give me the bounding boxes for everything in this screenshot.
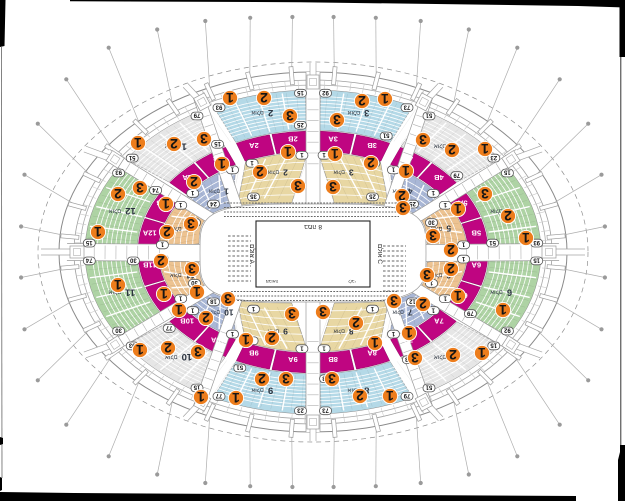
svg-text:3: 3	[411, 350, 419, 366]
svg-text:79: 79	[403, 392, 410, 398]
svg-text:1: 1	[402, 163, 410, 179]
svg-text:2: 2	[367, 155, 375, 171]
svg-text:15: 15	[214, 140, 221, 146]
svg-text:2: 2	[356, 388, 364, 404]
svg-text:1: 1	[454, 201, 462, 217]
svg-text:1: 1	[226, 90, 234, 106]
svg-text:1: 1	[232, 390, 240, 406]
svg-text:5B: 5B	[471, 229, 481, 238]
svg-text:1: 1	[197, 389, 205, 405]
svg-text:2: 2	[419, 296, 427, 312]
svg-text:4A: 4A	[403, 154, 413, 163]
svg-text:2: 2	[449, 347, 457, 363]
svg-text:2: 2	[358, 93, 366, 109]
svg-text:12: 12	[409, 298, 416, 304]
svg-text:8 במה: 8 במה	[304, 223, 322, 230]
svg-text:15: 15	[193, 384, 200, 390]
svg-text:3: 3	[294, 178, 302, 194]
svg-text:3: 3	[286, 108, 294, 124]
svg-text:30: 30	[129, 257, 136, 263]
svg-text:1: 1	[522, 230, 530, 246]
svg-text:51: 51	[128, 154, 135, 160]
svg-text:אולם A: אולם A	[248, 244, 256, 264]
svg-text:2: 2	[448, 142, 456, 158]
svg-text:2: 2	[256, 164, 264, 180]
svg-text:92: 92	[322, 89, 329, 95]
svg-text:9: 9	[268, 384, 273, 395]
svg-text:8B: 8B	[328, 355, 338, 364]
svg-text:2: 2	[447, 242, 455, 258]
svg-text:2: 2	[163, 224, 171, 240]
svg-text:1: 1	[160, 286, 168, 302]
svg-text:3: 3	[194, 344, 202, 360]
svg-text:93: 93	[215, 103, 222, 109]
svg-text:9: 9	[283, 327, 288, 337]
svg-text:24: 24	[210, 200, 217, 206]
svg-text:2: 2	[157, 253, 165, 269]
svg-text:אולם C: אולם C	[376, 244, 384, 264]
svg-text:3B: 3B	[367, 141, 377, 150]
svg-text:1: 1	[381, 91, 389, 107]
svg-text:לובי: לובי	[348, 279, 356, 284]
svg-text:2: 2	[170, 136, 178, 152]
svg-text:7: 7	[408, 308, 413, 318]
svg-text:73: 73	[403, 103, 410, 109]
svg-text:23: 23	[490, 154, 497, 160]
svg-text:אולם: אולם	[267, 168, 279, 175]
svg-text:9B: 9B	[249, 348, 259, 357]
svg-text:אולם: אולם	[490, 289, 503, 297]
svg-text:1: 1	[134, 135, 142, 151]
svg-text:אולם: אולם	[208, 188, 220, 195]
svg-text:אולם: אולם	[333, 328, 345, 335]
svg-text:18: 18	[210, 298, 217, 304]
svg-text:2: 2	[202, 310, 210, 326]
svg-text:79: 79	[193, 112, 200, 118]
svg-text:30: 30	[428, 218, 435, 224]
svg-text:2: 2	[268, 107, 273, 118]
svg-text:51: 51	[425, 112, 432, 118]
svg-text:2: 2	[352, 315, 360, 331]
svg-text:35: 35	[250, 193, 257, 199]
svg-text:3: 3	[481, 186, 489, 202]
svg-text:1: 1	[175, 302, 183, 318]
svg-text:1: 1	[162, 196, 170, 212]
svg-text:1: 1	[94, 224, 102, 240]
svg-text:מבואה: מבואה	[266, 279, 279, 284]
svg-text:3: 3	[188, 261, 196, 277]
svg-text:30: 30	[115, 327, 122, 333]
svg-text:79: 79	[453, 171, 460, 177]
svg-text:77: 77	[215, 392, 222, 398]
svg-text:אולם: אולם	[333, 168, 345, 175]
svg-text:2B: 2B	[288, 135, 298, 144]
svg-text:3: 3	[319, 304, 327, 320]
svg-text:15: 15	[85, 239, 92, 245]
svg-text:15: 15	[297, 89, 304, 95]
svg-text:3: 3	[136, 180, 144, 196]
svg-text:2: 2	[164, 340, 172, 356]
svg-text:2: 2	[268, 330, 276, 346]
svg-text:3: 3	[329, 179, 337, 195]
svg-text:12: 12	[125, 205, 136, 216]
svg-text:74: 74	[85, 257, 92, 263]
svg-text:25: 25	[369, 193, 376, 199]
svg-text:12A: 12A	[142, 229, 156, 238]
svg-text:3: 3	[390, 293, 398, 309]
svg-text:9A: 9A	[288, 355, 298, 364]
svg-text:1: 1	[224, 187, 229, 197]
svg-text:51: 51	[489, 239, 496, 245]
svg-text:92: 92	[503, 327, 510, 333]
svg-text:1: 1	[242, 332, 250, 348]
svg-text:אולם: אולם	[347, 109, 360, 117]
svg-text:10: 10	[224, 308, 234, 318]
svg-text:1: 1	[114, 277, 122, 293]
svg-text:1: 1	[284, 144, 292, 160]
svg-text:1: 1	[454, 288, 462, 304]
svg-text:3: 3	[328, 371, 336, 387]
svg-text:51: 51	[425, 384, 432, 390]
svg-text:74: 74	[152, 186, 159, 192]
svg-text:3: 3	[187, 216, 195, 232]
svg-text:3: 3	[288, 306, 296, 322]
svg-text:2: 2	[260, 90, 268, 106]
svg-text:3: 3	[419, 132, 427, 148]
svg-text:1: 1	[481, 141, 489, 157]
svg-text:1: 1	[478, 345, 486, 361]
svg-text:3: 3	[224, 291, 232, 307]
svg-text:10A: 10A	[210, 335, 224, 344]
svg-text:5: 5	[446, 224, 451, 234]
svg-text:2: 2	[283, 167, 288, 177]
svg-text:אולם: אולם	[109, 207, 122, 215]
svg-text:1: 1	[371, 335, 379, 351]
svg-text:1: 1	[499, 302, 507, 318]
svg-text:15: 15	[503, 169, 510, 175]
svg-text:7A: 7A	[434, 317, 444, 326]
svg-text:51: 51	[236, 364, 243, 370]
svg-text:3: 3	[200, 131, 208, 147]
svg-text:3: 3	[333, 112, 341, 128]
svg-text:3: 3	[429, 228, 437, 244]
svg-text:אולם: אולם	[251, 109, 264, 117]
svg-text:3: 3	[349, 167, 354, 177]
svg-text:6: 6	[507, 286, 512, 297]
svg-text:1: 1	[218, 156, 226, 172]
svg-text:15: 15	[490, 342, 497, 348]
svg-text:2: 2	[447, 261, 455, 277]
svg-text:2A: 2A	[249, 141, 259, 150]
svg-text:אולם: אולם	[170, 271, 182, 278]
svg-text:73: 73	[322, 406, 329, 412]
svg-text:6A: 6A	[471, 261, 481, 270]
svg-text:2: 2	[258, 371, 266, 387]
svg-text:1: 1	[193, 284, 201, 300]
svg-text:3: 3	[423, 267, 431, 283]
svg-text:77: 77	[165, 324, 172, 330]
svg-text:1: 1	[386, 388, 394, 404]
svg-text:1: 1	[136, 342, 144, 358]
svg-text:2: 2	[504, 208, 512, 224]
svg-text:25: 25	[296, 121, 303, 127]
svg-text:3: 3	[282, 371, 290, 387]
svg-text:79: 79	[466, 309, 473, 315]
svg-text:2: 2	[114, 186, 122, 202]
svg-text:2: 2	[190, 174, 198, 190]
svg-text:3: 3	[399, 200, 407, 216]
svg-text:11: 11	[124, 286, 135, 297]
svg-text:4B: 4B	[434, 173, 444, 182]
svg-text:93: 93	[115, 169, 122, 175]
svg-text:3A: 3A	[328, 135, 338, 144]
svg-text:אולם: אולם	[434, 353, 447, 361]
svg-text:1: 1	[405, 325, 413, 341]
svg-text:15: 15	[533, 257, 540, 263]
svg-text:23: 23	[297, 406, 304, 412]
svg-text:51: 51	[382, 132, 389, 138]
svg-text:1: 1	[331, 146, 339, 162]
